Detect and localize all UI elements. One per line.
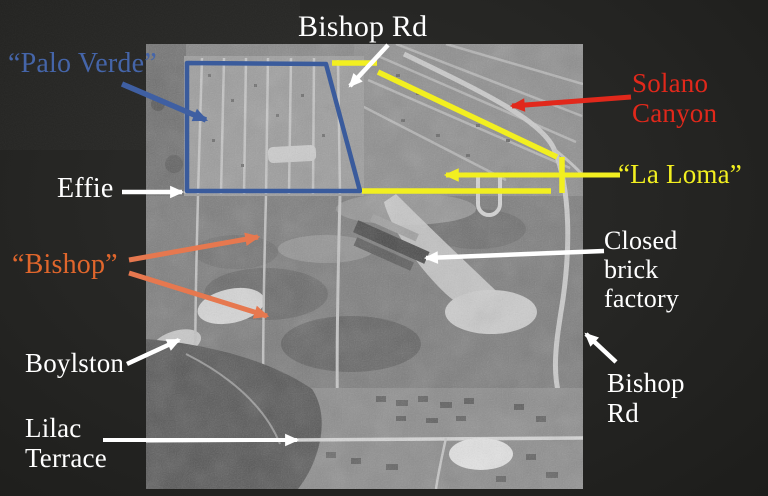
label-lilac-terrace: Lilac Terrace — [25, 413, 143, 473]
label-effie: Effie — [57, 173, 113, 204]
aerial-photo — [146, 44, 583, 489]
label-bishop: “Bishop” — [12, 249, 118, 280]
label-closed-brick-factory: Closed brick factory — [604, 226, 704, 313]
label-palo-verde: “Palo Verde” — [8, 48, 157, 79]
label-boylston: Boylston — [25, 348, 124, 378]
bishop-rd-right-arrow — [586, 334, 616, 362]
label-bishop-rd-right: Bishop Rd — [607, 368, 702, 428]
label-bishop-rd-top: Bishop Rd — [298, 10, 427, 44]
label-la-loma: “La Loma” — [618, 159, 742, 189]
aerial-photo-image — [146, 44, 583, 489]
label-solano-canyon: Solano Canyon — [632, 68, 744, 128]
slide: { "slide": { "labels": { "bishop_rd_top"… — [0, 0, 768, 496]
